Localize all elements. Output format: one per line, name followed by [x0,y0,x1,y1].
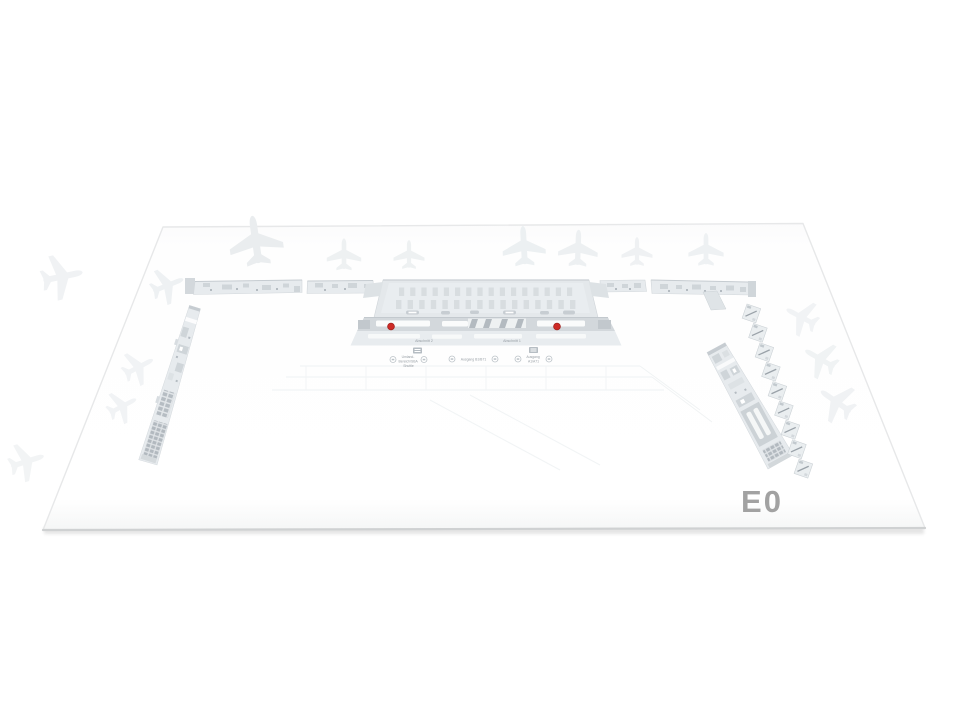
terminal-main: Abschnitt 2 Abschnitt 1 [351,280,622,354]
poi-marker-left[interactable] [388,323,395,330]
screenshot-root: Abschnitt 2 Abschnitt 1 Umland- Bereic [0,0,960,720]
stop-label-b: Ausgang B1/B71 [461,358,487,362]
section-label-2: Abschnitt 2 [415,339,433,343]
poi-marker-right[interactable] [554,323,561,330]
airport-map: Abschnitt 2 Abschnitt 1 Umland- Bereic [0,0,960,720]
airplane-icon [4,437,50,485]
terminal-stairs [468,319,526,329]
stop-label-a: Ausgang A1/A71 [526,355,540,363]
level-label: E0 [741,484,783,519]
airplane-icon [37,250,87,303]
north-pier-west-2 [307,281,374,294]
elevator-icon [413,348,422,354]
section-label-1: Abschnitt 1 [503,339,521,343]
elevator-icon [529,347,538,353]
